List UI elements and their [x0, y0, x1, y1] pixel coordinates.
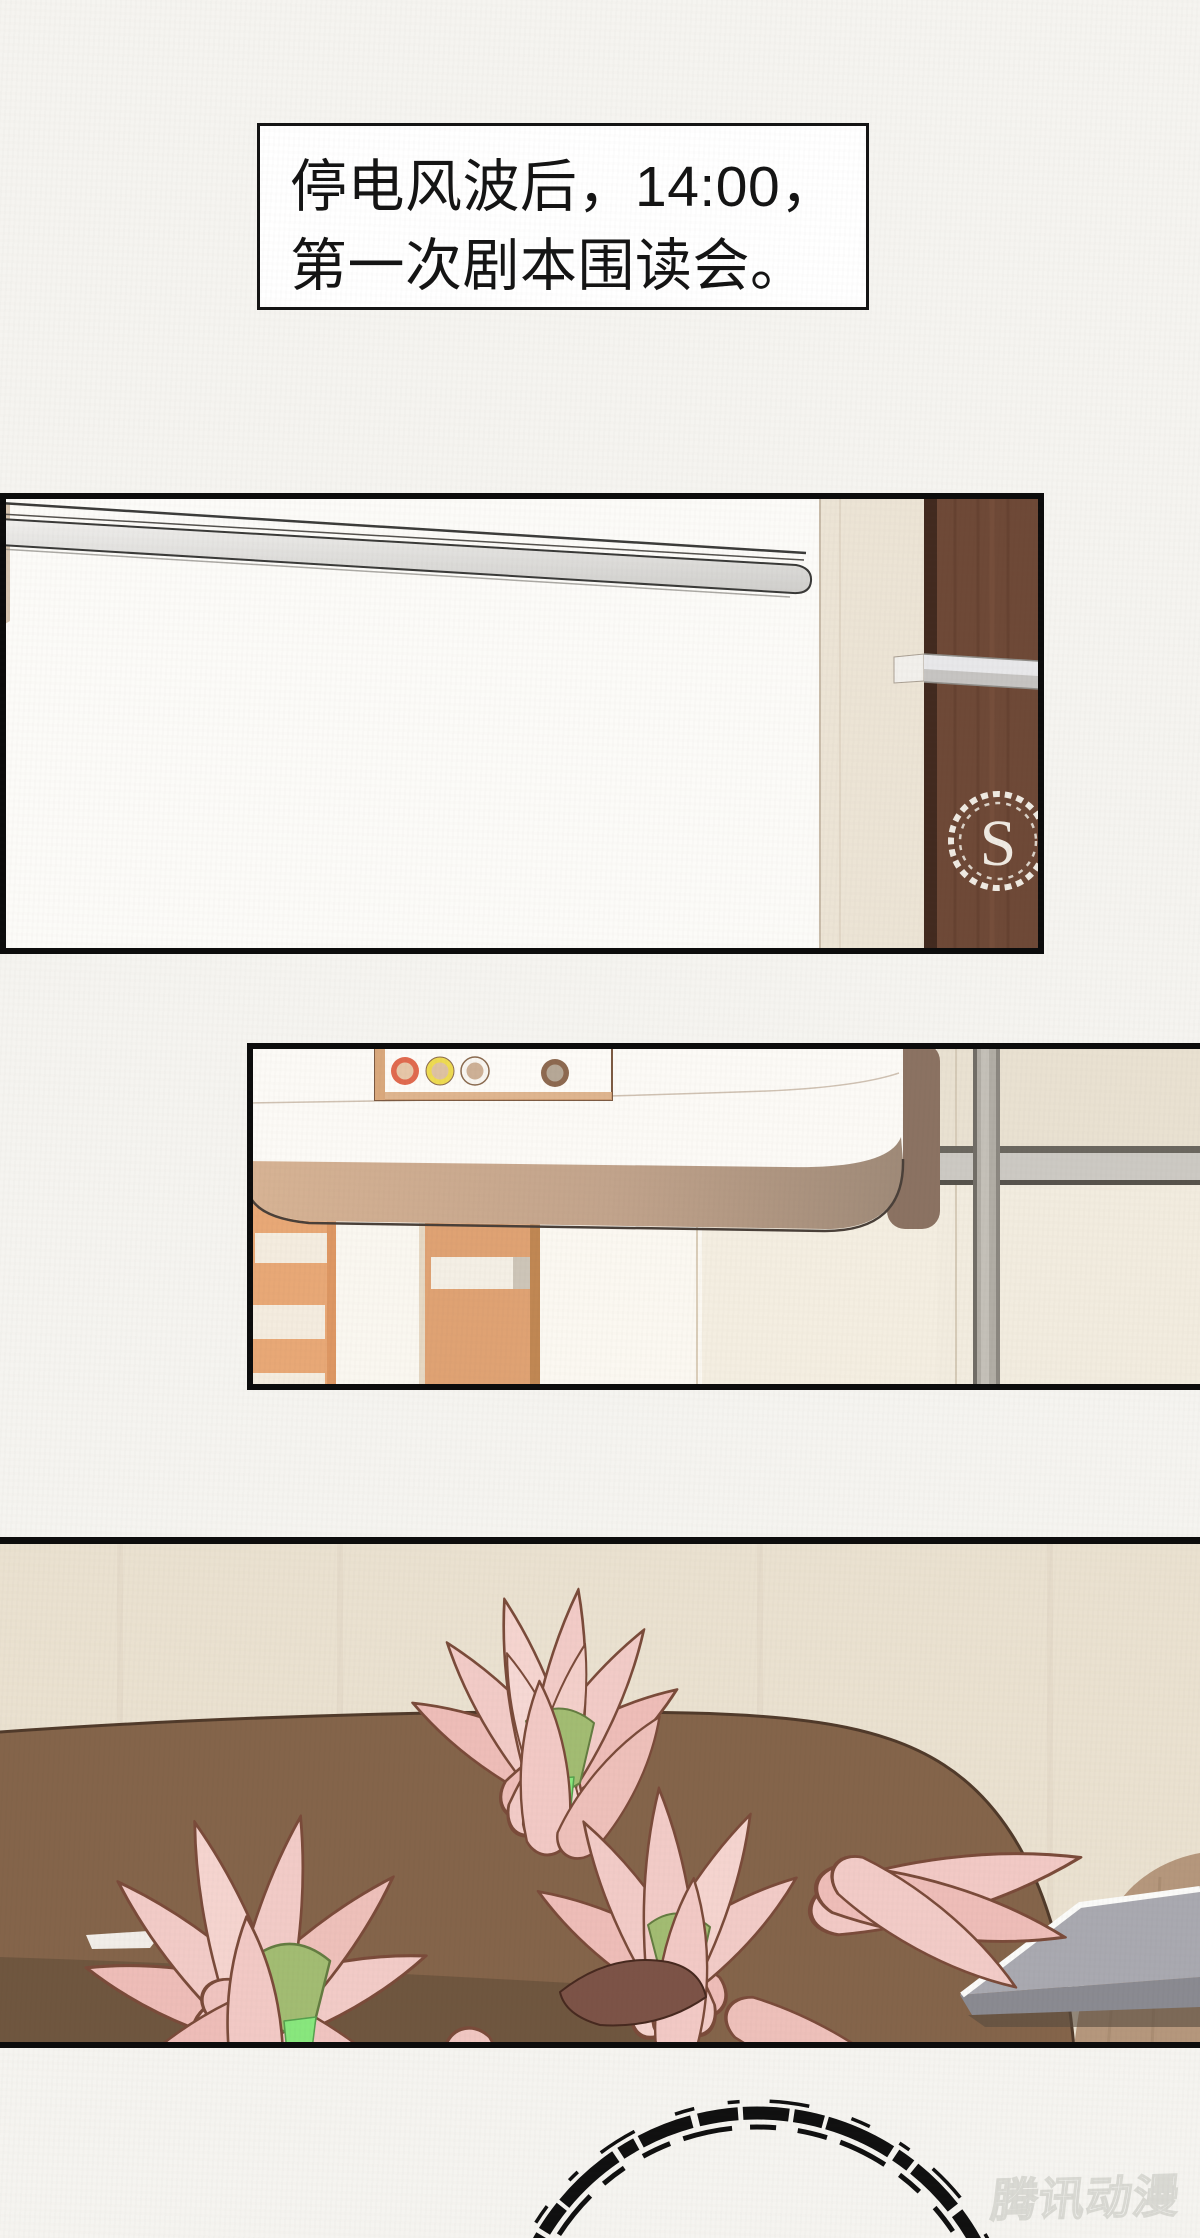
comic-page: 停电风波后，14:00， 第一次剧本围读会。: [0, 0, 1200, 2238]
av-port-panel: [375, 1048, 612, 1100]
logo-letter: S: [980, 807, 1017, 880]
av-port-white-icon: [461, 1057, 489, 1085]
support-pole: [973, 1043, 1000, 1390]
caption-box: 停电风波后，14:00， 第一次剧本围读会。: [257, 123, 869, 310]
ceiling-unit: [247, 1043, 940, 1231]
panel-flowers: [0, 1537, 1200, 2048]
panel-projector: [247, 1043, 1200, 1390]
av-port-red-icon: [391, 1057, 419, 1085]
tencent-comics-watermark: 腾讯动漫: [988, 2159, 1200, 2234]
caption-line-1: 停电风波后，14:00，: [290, 148, 866, 227]
ink-circle-sketch: [480, 2050, 1020, 2238]
av-port-brown-icon: [541, 1059, 569, 1087]
av-port-yellow-icon: [426, 1057, 454, 1085]
wall-strip: [820, 493, 924, 954]
panel-whiteboard: S: [0, 493, 1044, 954]
caption-line-2: 第一次剧本围读会。: [290, 227, 866, 306]
